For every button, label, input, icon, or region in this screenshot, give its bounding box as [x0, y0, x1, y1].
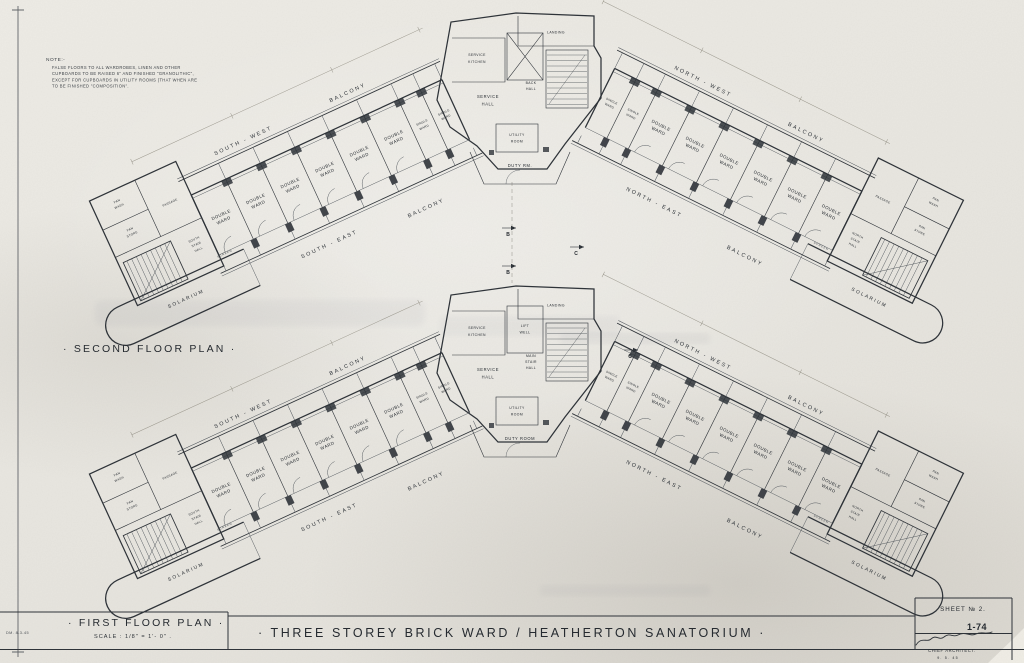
blueprint-sheet: LANDINGSERVICEKITCHENSERVICEHALLBACKHALL… [0, 0, 1024, 663]
scan-grain-overlay [0, 0, 1024, 663]
sanatorium-floor-plan-drawing: LANDINGSERVICEKITCHENSERVICEHALLBACKHALL… [0, 0, 1024, 663]
